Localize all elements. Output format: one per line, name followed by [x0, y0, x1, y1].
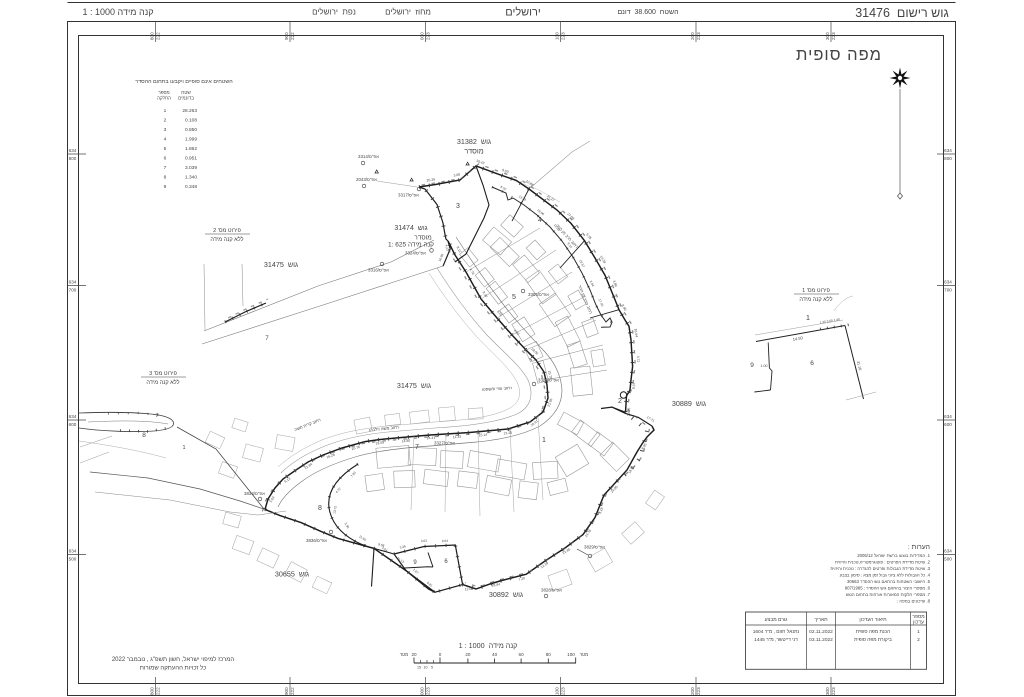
svg-text:4. כל הגבולות ללא ציוני גבול ז: 4. כל הגבולות ללא ציוני גבול זמן מצא : ס…	[840, 573, 931, 578]
svg-text:9.64: 9.64	[442, 539, 449, 543]
svg-text:1.00: 1.00	[761, 364, 768, 368]
svg-text:המרכז למיפוי ישראל, חשון תשפ"ג: המרכז למיפוי ישראל, חשון תשפ"ג , נובמבר …	[112, 655, 235, 663]
svg-text:עדכון: עדכון	[913, 620, 924, 626]
svg-text:3: 3	[456, 203, 460, 210]
svg-text:9: 9	[750, 362, 754, 369]
svg-text:גוש 30655: גוש 30655	[275, 570, 309, 579]
svg-text:גוש 31475: גוש 31475	[264, 260, 298, 269]
svg-text:900: 900	[284, 687, 289, 695]
svg-text:15: 15	[417, 666, 421, 670]
svg-text:6: 6	[810, 360, 814, 367]
svg-text:600: 600	[69, 422, 77, 427]
svg-text:634: 634	[69, 549, 77, 554]
svg-text:קנה מידה 1000 : 1: קנה מידה 1000 : 1	[82, 7, 153, 17]
svg-text:80: 80	[546, 652, 552, 657]
svg-text:200: 200	[690, 32, 695, 40]
svg-text:6: 6	[164, 156, 167, 162]
svg-text:0.348: 0.348	[185, 184, 197, 190]
svg-text:3: 3	[164, 127, 167, 133]
svg-text:הכנת מפה סופית: הכנת מפה סופית	[856, 630, 890, 635]
svg-text:4: 4	[164, 137, 167, 143]
svg-text:השטחים אינם סופיים ויקבעו בתחו: השטחים אינם סופיים ויקבעו בתחום ההסדר	[135, 79, 232, 85]
svg-text:24.41: 24.41	[427, 436, 436, 441]
svg-text:7: 7	[415, 444, 419, 451]
svg-text:222: 222	[156, 687, 161, 695]
svg-text:5: 5	[512, 294, 516, 301]
svg-text:100: 100	[567, 652, 575, 657]
svg-text:100: 100	[555, 687, 560, 695]
svg-text:דני דייטשר, מ"ר 1445: דני דייטשר, מ"ר 1445	[754, 637, 798, 643]
svg-text:3327/אפ"ס: 3327/אפ"ס	[434, 441, 455, 446]
svg-text:בדונמים: בדונמים	[178, 96, 194, 101]
svg-text:נתנאל חזום , מ"ר 1604: נתנאל חזום , מ"ר 1604	[753, 628, 800, 635]
svg-text:4: 4	[538, 217, 542, 224]
svg-text:200: 200	[690, 687, 695, 695]
svg-text:ללא קנה מידה: ללא קנה מידה	[210, 236, 243, 243]
svg-text:2043/אפ"ס: 2043/אפ"ס	[356, 177, 377, 182]
svg-text:ללא קנה מידה: ללא קנה מידה	[146, 379, 179, 386]
svg-text:1.340: 1.340	[185, 175, 197, 181]
svg-text:5. חישובי השטחות בהתאם גוש ההס: 5. חישובי השטחות בהתאם גוש ההסדר 30663	[847, 579, 931, 584]
svg-text:223: 223	[831, 687, 836, 695]
svg-text:פירוט מס' 3: פירוט מס' 3	[149, 371, 177, 377]
svg-text:8: 8	[318, 505, 322, 512]
svg-text:7. מספרי חלקות המאורות אורחות: 7. מספרי חלקות המאורות אורחות בתחום הגוש	[846, 592, 931, 597]
svg-text:3.039: 3.039	[185, 165, 197, 171]
svg-text:1: 1	[806, 313, 810, 322]
svg-text:8. עדכונים במפה :: 8. עדכונים במפה :	[897, 599, 931, 604]
svg-text:מפה סופית: מפה סופית	[796, 46, 882, 64]
svg-text:223: 223	[696, 32, 701, 40]
svg-text:נפת ירושלים: נפת ירושלים	[312, 8, 356, 17]
svg-text:הערות :: הערות :	[908, 544, 930, 551]
svg-text:גוש 30892: גוש 30892	[489, 590, 523, 599]
svg-text:0.108: 0.108	[185, 118, 197, 124]
svg-text:1.999: 1.999	[185, 137, 197, 143]
svg-text:מטר: מטר	[580, 652, 589, 657]
svg-text:10: 10	[424, 666, 428, 670]
svg-text:634: 634	[944, 414, 952, 419]
svg-text:5: 5	[164, 146, 167, 152]
svg-text:20.55: 20.55	[627, 407, 631, 416]
svg-text:3324/אפ"ס: 3324/אפ"ס	[405, 251, 426, 256]
svg-text:גורם מבצע: גורם מבצע	[765, 617, 788, 623]
svg-text:מטר: מטר	[400, 652, 409, 657]
svg-text:3.72: 3.72	[636, 356, 640, 363]
svg-text:5: 5	[431, 666, 433, 670]
svg-text:8: 8	[164, 175, 167, 181]
svg-text:3314/אפ"ס: 3314/אפ"ס	[358, 154, 379, 159]
svg-text:1: 1	[542, 437, 546, 444]
svg-text:20: 20	[411, 652, 417, 657]
svg-text:3829/אפ"ס: 3829/אפ"ס	[584, 545, 605, 550]
svg-text:השטח 38.600 דונם: השטח 38.600 דונם	[617, 9, 678, 16]
svg-text:2. שיטת מדידת הפרטים : פוטוגרמ: 2. שיטת מדידת הפרטים : פוטוגרמטריה,טכנית…	[835, 560, 930, 565]
svg-text:ללא קנה מידה: ללא קנה מידה	[799, 296, 832, 303]
svg-text:223: 223	[426, 32, 431, 40]
svg-text:9: 9	[164, 184, 167, 190]
svg-text:3316/אפ"ס: 3316/אפ"ס	[368, 268, 389, 273]
svg-text:מוסדר: מוסדר	[414, 235, 432, 242]
svg-text:3.63: 3.63	[421, 539, 428, 543]
svg-text:1: 1	[917, 629, 920, 635]
svg-text:700: 700	[944, 288, 952, 293]
svg-text:14.80: 14.80	[402, 439, 411, 444]
svg-text:פירוט מס' 1: פירוט מס' 1	[802, 288, 830, 294]
svg-text:גוש 31475: גוש 31475	[397, 381, 431, 390]
svg-text:11.33: 11.33	[453, 435, 462, 440]
svg-text:634: 634	[69, 280, 77, 285]
svg-text:900: 900	[284, 32, 289, 40]
svg-text:מספר: מספר	[158, 90, 169, 95]
svg-text:634: 634	[944, 148, 952, 153]
svg-text:60: 60	[519, 652, 525, 657]
svg-text:ביקורת מפה סופית: ביקורת מפה סופית	[854, 638, 892, 643]
svg-text:8: 8	[142, 432, 146, 439]
svg-text:20: 20	[465, 652, 471, 657]
svg-text:800: 800	[150, 32, 155, 40]
svg-text:634: 634	[944, 549, 952, 554]
svg-text:223: 223	[426, 687, 431, 695]
svg-text:000: 000	[420, 687, 425, 695]
svg-text:2: 2	[618, 398, 622, 405]
svg-text:21.25: 21.25	[504, 431, 513, 436]
svg-text:40: 40	[492, 652, 498, 657]
svg-text:3326/אפ"ס: 3326/אפ"ס	[538, 378, 559, 383]
svg-text:03.11.2022: 03.11.2022	[809, 637, 833, 643]
svg-text:מוסדר: מוסדר	[464, 147, 483, 156]
svg-text:02.11.2022: 02.11.2022	[809, 629, 833, 635]
svg-text:15.14: 15.14	[479, 433, 488, 438]
svg-text:222: 222	[290, 687, 295, 695]
svg-text:7: 7	[155, 413, 158, 419]
svg-text:634: 634	[69, 414, 77, 419]
svg-text:גוש 31474: גוש 31474	[394, 225, 427, 232]
svg-text:כל זכויות ההעתקה שמורות: כל זכויות ההעתקה שמורות	[140, 664, 206, 672]
svg-text:3317/אפ"ס: 3317/אפ"ס	[398, 193, 419, 198]
svg-text:גוש 30889: גוש 30889	[672, 399, 706, 408]
svg-text:2: 2	[917, 637, 920, 643]
svg-text:300: 300	[825, 32, 830, 40]
svg-text:3836/אפ"ס: 3836/אפ"ס	[306, 538, 327, 543]
svg-text:12.09: 12.09	[465, 587, 474, 592]
svg-text:634: 634	[944, 280, 952, 285]
svg-text:1. המדידות בוצעו ברשת ישראל 20: 1. המדידות בוצעו ברשת ישראל 2005/12	[857, 553, 930, 558]
svg-text:222: 222	[156, 32, 161, 40]
svg-text:גוש 31382: גוש 31382	[457, 137, 491, 146]
svg-text:ירושלים: ירושלים	[505, 6, 541, 19]
svg-text:500: 500	[944, 557, 952, 562]
svg-text:1: 1	[182, 445, 185, 451]
svg-text:600: 600	[944, 422, 952, 427]
svg-text:7: 7	[164, 165, 167, 171]
svg-text:100: 100	[555, 32, 560, 40]
svg-text:פירוט מס' 2: פירוט מס' 2	[213, 228, 241, 234]
svg-text:223: 223	[831, 32, 836, 40]
svg-text:300: 300	[825, 687, 830, 695]
svg-text:שטח: שטח	[181, 90, 191, 95]
svg-text:קנה מידה 1000 : 1: קנה מידה 1000 : 1	[459, 641, 518, 650]
svg-text:000: 000	[420, 32, 425, 40]
svg-text:קנה מידה 625 :1: קנה מידה 625 :1	[388, 242, 434, 249]
svg-text:מחוז ירושלים: מחוז ירושלים	[385, 8, 431, 17]
svg-text:223: 223	[561, 687, 566, 695]
svg-text:גוש רישום 31476: גוש רישום 31476	[855, 6, 949, 20]
svg-text:1: 1	[164, 108, 167, 114]
svg-text:1.862: 1.862	[185, 146, 197, 152]
svg-text:6. מספרי היצור בהתאם גוש ההסדר: 6. מספרי היצור בהתאם גוש ההסדר : 807/198…	[845, 586, 931, 591]
svg-text:800: 800	[150, 687, 155, 695]
svg-text:700: 700	[69, 288, 77, 293]
svg-text:222: 222	[290, 32, 295, 40]
svg-text:0: 0	[439, 652, 442, 657]
svg-text:2: 2	[164, 118, 167, 124]
svg-text:223: 223	[696, 687, 701, 695]
svg-text:634: 634	[69, 148, 77, 153]
svg-text:תיאור העדכון: תיאור העדכון	[859, 617, 887, 623]
svg-text:223: 223	[561, 32, 566, 40]
svg-text:800: 800	[944, 156, 952, 161]
svg-text:0.850: 0.850	[185, 127, 197, 133]
svg-text:800: 800	[69, 156, 77, 161]
svg-text:8.37: 8.37	[632, 382, 637, 389]
svg-text:3. שיטת מדידת הגבולות ופרטים ל: 3. שיטת מדידת הגבולות ופרטים להגדרה : טכ…	[830, 566, 930, 571]
svg-text:500: 500	[69, 557, 77, 562]
svg-text:3828/אפ"ס: 3828/אפ"ס	[541, 588, 562, 593]
svg-text:3834/אפ"ס: 3834/אפ"ס	[244, 491, 265, 496]
svg-text:החלקה: החלקה	[157, 96, 171, 101]
svg-text:תאריך: תאריך	[814, 617, 828, 623]
svg-text:28.263: 28.263	[182, 108, 197, 114]
svg-text:0.951: 0.951	[185, 156, 197, 162]
